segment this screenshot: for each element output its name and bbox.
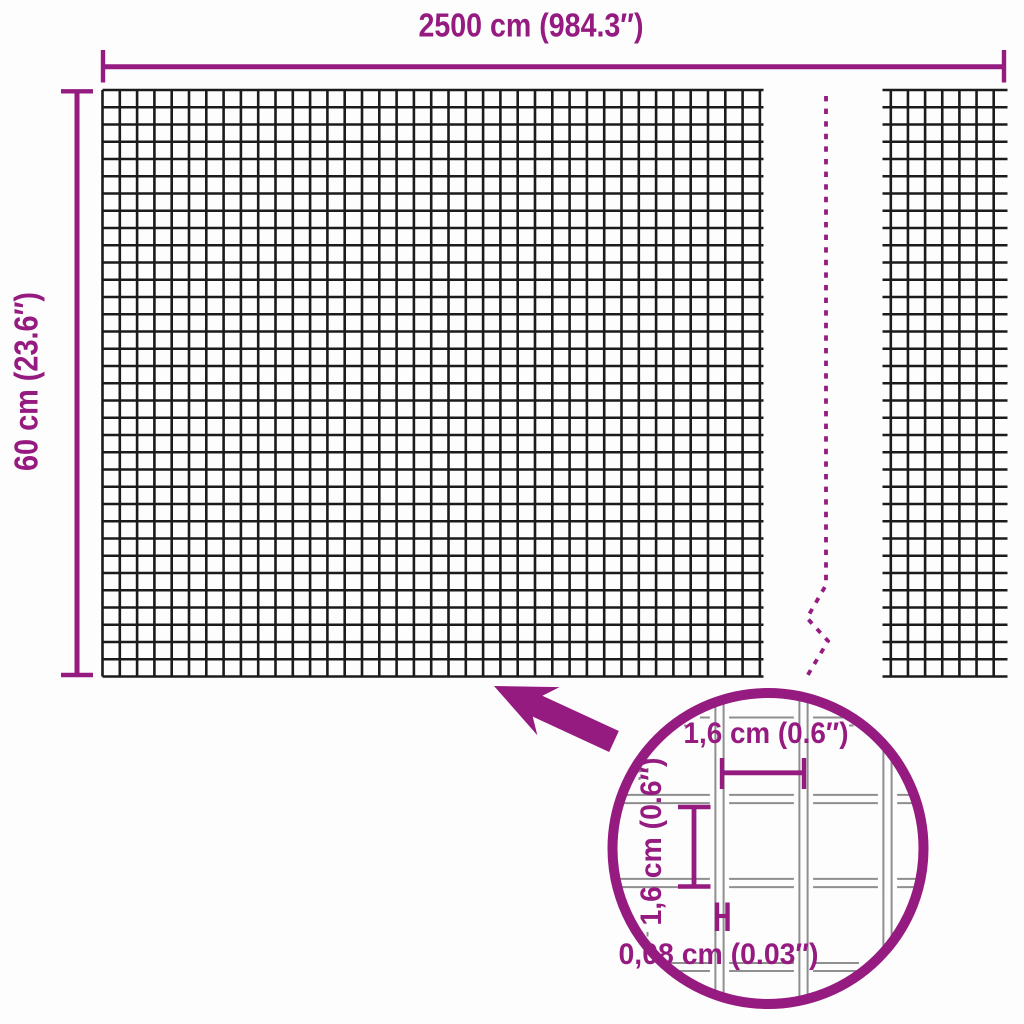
svg-text:0,08 cm (0.03″): 0,08 cm (0.03″) [619,938,819,971]
svg-text:1,6 cm (0.6″): 1,6 cm (0.6″) [684,717,849,750]
svg-text:60 cm (23.6″): 60 cm (23.6″) [8,292,45,471]
svg-text:2500 cm (984.3″): 2500 cm (984.3″) [419,7,644,44]
svg-text:1,6 cm (0.6″): 1,6 cm (0.6″) [635,758,668,926]
